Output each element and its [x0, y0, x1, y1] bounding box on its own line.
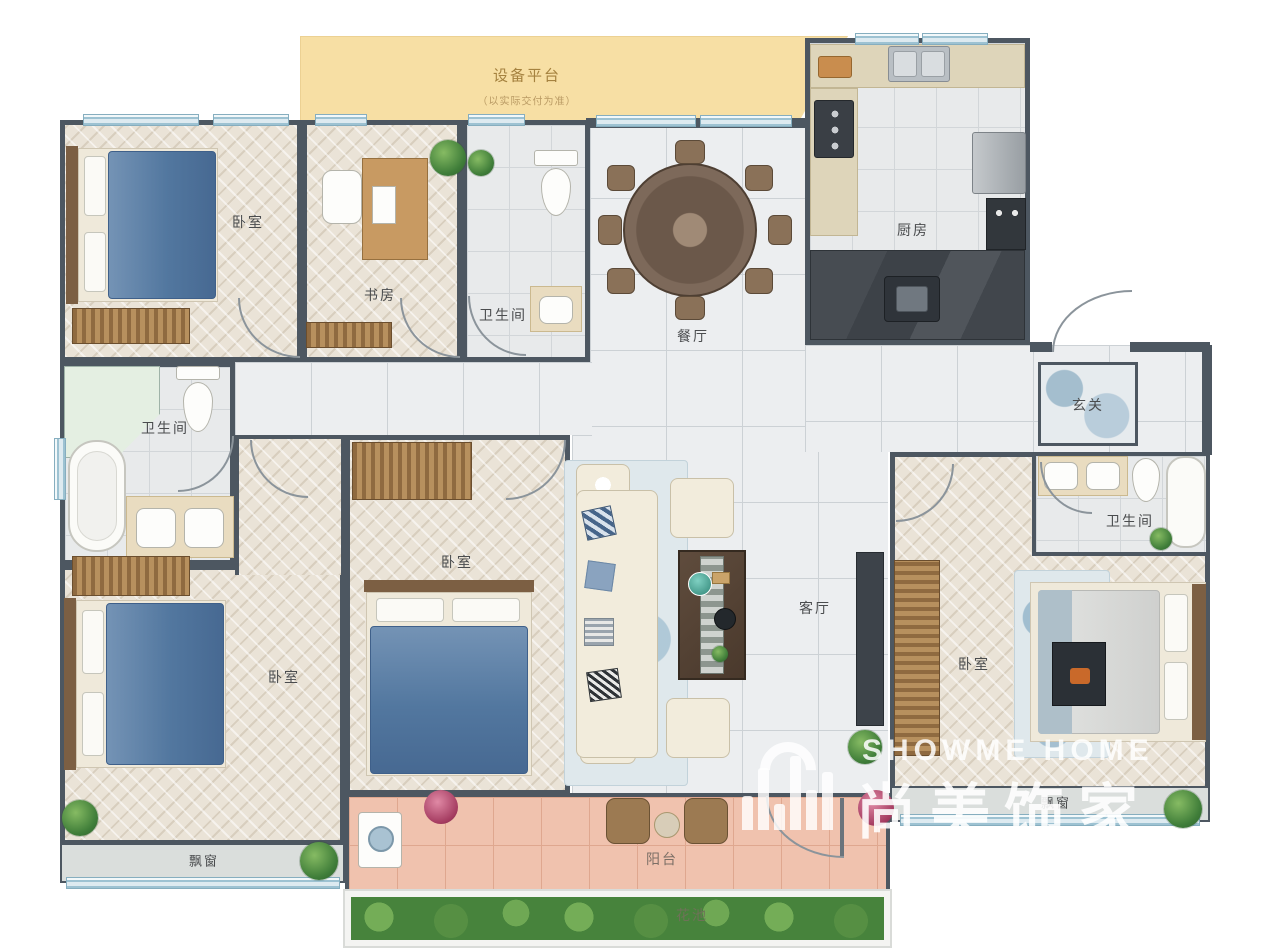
window — [855, 33, 919, 45]
room-label-flower-bed: 花池 — [676, 905, 708, 925]
wardrobe — [894, 560, 940, 756]
room-label-living: 客厅 — [799, 598, 831, 618]
teapot — [688, 572, 712, 596]
room-label-bedroom-top-left: 卧室 — [232, 212, 264, 232]
window — [83, 114, 199, 126]
toilet-tank — [176, 366, 220, 380]
window — [54, 438, 66, 500]
room-label-dining: 餐厅 — [677, 326, 709, 346]
window — [700, 115, 792, 127]
bed-headboard — [64, 598, 76, 770]
sofa-pillow — [584, 618, 614, 646]
flower-plant — [424, 790, 458, 824]
plant — [300, 842, 338, 880]
kitchen-sink-bowl — [921, 51, 945, 77]
bed-pillow — [1164, 594, 1188, 652]
vanity-basin — [136, 508, 176, 548]
patio-table — [654, 812, 680, 838]
laptop — [372, 186, 396, 224]
room-label-bathroom-right: 卫生间 — [1106, 511, 1154, 531]
bed-pillow — [82, 692, 104, 756]
wardrobe — [352, 442, 472, 500]
tv-console — [856, 552, 884, 726]
bookshelf — [306, 322, 392, 348]
hall-top-wall-right — [1130, 342, 1210, 352]
tea-tray — [712, 572, 730, 584]
sofa-pillow — [581, 505, 617, 541]
plant — [712, 646, 728, 662]
room-label-bathroom-left: 卫生间 — [141, 418, 189, 438]
armchair — [666, 698, 730, 758]
sofa-pillow — [586, 668, 622, 702]
room-label-study: 书房 — [364, 285, 396, 305]
dining-chair — [745, 165, 773, 191]
floor-plan-canvas: 设备平台 （以实际交付为准） — [0, 0, 1284, 948]
window — [922, 33, 988, 45]
fireplace-flame — [1070, 668, 1090, 684]
stove — [814, 100, 854, 158]
window — [213, 114, 289, 126]
bed-pillow — [452, 598, 520, 622]
watermark-brand-en: SHOWME HOME — [862, 734, 1154, 768]
bed-pillow — [84, 232, 106, 292]
dining-table — [623, 163, 757, 297]
brand-logo-icon — [742, 742, 846, 830]
watermark-brand-cn: 尚美饰家 — [856, 764, 1152, 851]
window — [468, 114, 525, 126]
dining-chair — [675, 296, 705, 320]
bed-headboard — [364, 580, 534, 592]
room-label-balcony: 阳台 — [646, 849, 678, 869]
dining-chair — [607, 268, 635, 294]
sofa-pillow — [584, 560, 616, 592]
lounge-chair — [606, 798, 650, 844]
plant — [1164, 790, 1202, 828]
window — [315, 114, 367, 126]
bed-pillow — [376, 598, 444, 622]
desk-chair — [322, 170, 362, 224]
kettle — [714, 608, 736, 630]
coffee-station — [986, 198, 1026, 250]
plant — [1150, 528, 1172, 550]
island-sink-bowl — [896, 286, 928, 312]
bed-duvet — [106, 603, 224, 765]
room-label-bedroom-bottom-left: 卧室 — [268, 667, 300, 687]
plant — [430, 140, 466, 176]
fridge — [972, 132, 1026, 194]
cutting-board — [818, 56, 852, 78]
bedside-rug — [72, 556, 190, 596]
bed-headboard — [1192, 584, 1206, 740]
bed-headboard — [66, 146, 78, 304]
washing-machine-door — [368, 826, 394, 852]
equipment-platform — [300, 36, 848, 122]
bedside-rug — [72, 308, 190, 344]
equipment-platform-label: 设备平台 — [493, 65, 561, 86]
equipment-platform-sublabel: （以实际交付为准） — [478, 93, 577, 108]
room-label-foyer: 玄关 — [1072, 395, 1104, 415]
bed-duvet — [108, 151, 216, 299]
bathtub — [1166, 456, 1206, 548]
corridor-floor — [235, 362, 592, 435]
dining-chair — [607, 165, 635, 191]
plant — [468, 150, 494, 176]
dining-chair — [745, 268, 773, 294]
room-label-bay-window-left: 飘窗 — [189, 851, 219, 870]
room-label-bedroom-right: 卧室 — [958, 654, 990, 674]
bed-duvet — [370, 626, 528, 774]
flower-bed-planting — [351, 897, 884, 940]
bed-pillow — [1164, 662, 1188, 720]
bed-pillow — [82, 610, 104, 674]
kitchen-sink-bowl — [893, 51, 917, 77]
dining-chair — [598, 215, 622, 245]
dining-chair — [768, 215, 792, 245]
vanity-basin — [184, 508, 224, 548]
plant — [62, 800, 98, 836]
window — [596, 115, 696, 127]
entrance-door-arc — [1052, 290, 1132, 352]
room-label-bathroom-top: 卫生间 — [479, 305, 527, 325]
sink-basin — [539, 296, 573, 324]
bay-window-left-glass — [66, 877, 340, 889]
bathtub-inner — [77, 451, 117, 541]
hall-top-wall-left — [1030, 342, 1052, 352]
lounge-chair — [684, 798, 728, 844]
hall-right-wall — [1202, 345, 1212, 455]
armchair — [670, 478, 734, 538]
room-label-bedroom-middle: 卧室 — [441, 552, 473, 572]
bed-pillow — [84, 156, 106, 216]
dining-chair — [675, 140, 705, 164]
toilet-tank — [534, 150, 578, 166]
hall-floor — [805, 345, 1212, 452]
room-label-kitchen: 厨房 — [897, 220, 929, 240]
